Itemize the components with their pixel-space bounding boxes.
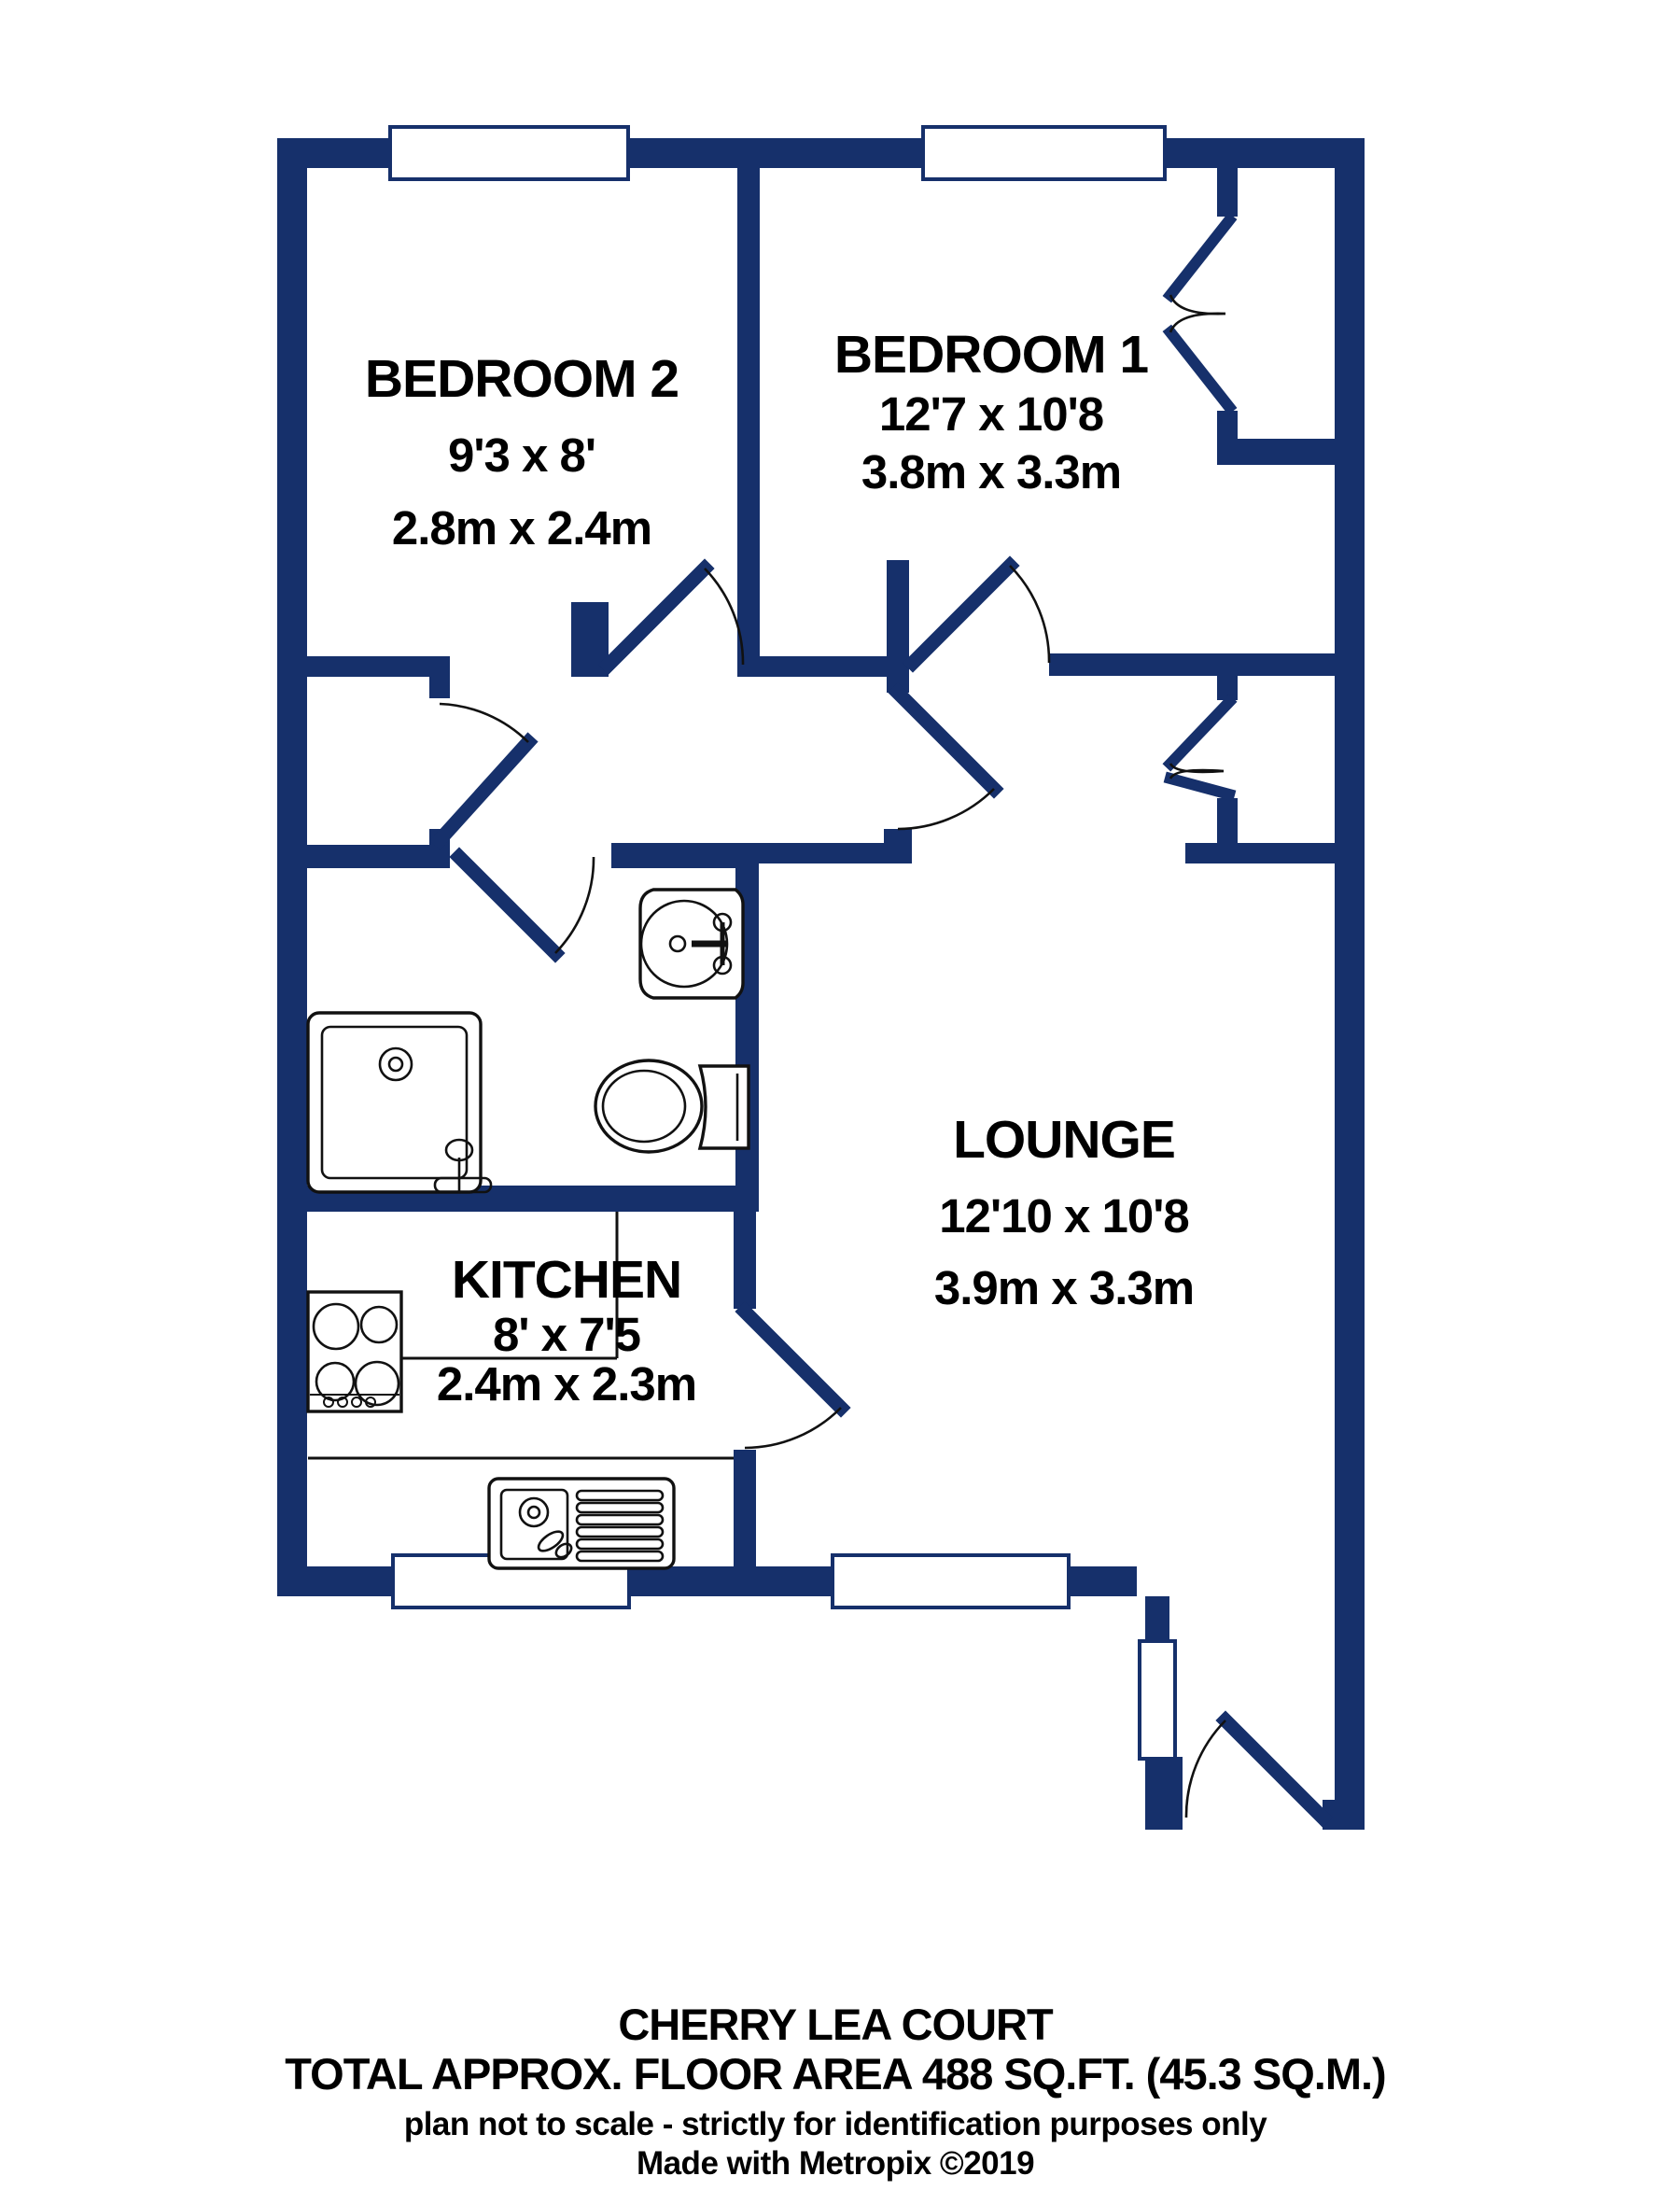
wall-porch-left-lower	[1145, 1757, 1183, 1830]
footer-property-name: CHERRY LEA COURT	[618, 2000, 1054, 2049]
bedroom1-metric: 3.8m x 3.3m	[861, 445, 1121, 498]
wall-left	[277, 138, 307, 1596]
door-entry	[1186, 1720, 1323, 1818]
floor-plan: BEDROOM 2 9'3 x 8' 2.8m x 2.4m BEDROOM 1…	[0, 0, 1680, 2190]
bedroom2-metric: 2.8m x 2.4m	[392, 501, 651, 555]
footer-disclaimer: plan not to scale - strictly for identif…	[404, 2106, 1267, 2142]
wall-right	[1335, 138, 1365, 1830]
window-lounge	[833, 1555, 1069, 1607]
footer-credit: Made with Metropix ©2019	[637, 2145, 1034, 2182]
wall-alcove1-bottom	[1217, 439, 1335, 465]
bedroom2-imperial: 9'3 x 8'	[448, 428, 595, 482]
wall-alcove2-stub-bottom	[1217, 798, 1238, 843]
wall-bedroom1-jamb	[887, 560, 909, 693]
door-bedroom1	[913, 566, 1049, 663]
bedroom2-name: BEDROOM 2	[365, 349, 679, 409]
door-kitchen	[745, 1312, 841, 1448]
wall-kitchen-divider-upper	[734, 1212, 756, 1309]
kitchen-name: KITCHEN	[452, 1250, 681, 1310]
wall-alcove2-bottom	[1185, 843, 1335, 863]
wall-kitchen-divider-lower	[734, 1450, 756, 1596]
lounge-imperial: 12'10 x 10'8	[939, 1189, 1189, 1242]
wall-cupboard-jamb-top	[429, 656, 450, 698]
fixtures	[308, 890, 749, 1568]
wall-lounge-top	[611, 843, 912, 863]
wall-bathroom-top-west	[307, 845, 429, 868]
door-bathroom	[459, 857, 594, 953]
kitchen-sink-icon	[489, 1479, 674, 1568]
wall-porch-left-upper	[1145, 1596, 1169, 1643]
hob-icon	[308, 1292, 401, 1411]
footer-area-line: TOTAL APPROX. FLOOR AREA 488 SQ.FT. (45.…	[285, 2049, 1385, 2099]
window-porch	[1140, 1641, 1175, 1759]
lounge-metric: 3.9m x 3.3m	[934, 1261, 1194, 1314]
shower-icon	[308, 1013, 491, 1192]
bedroom1-imperial: 12'7 x 10'8	[879, 387, 1103, 441]
door-lounge	[898, 693, 994, 829]
door-hall-cupboard	[440, 704, 528, 840]
door-bedroom2	[609, 569, 743, 665]
kitchen-metric: 2.4m x 2.3m	[437, 1357, 696, 1411]
bedroom1-name: BEDROOM 1	[834, 325, 1149, 385]
wall-bedroom1-south-east	[1049, 653, 1335, 676]
wall-bedroom2-bottom	[307, 656, 429, 677]
room-labels: BEDROOM 2 9'3 x 8' 2.8m x 2.4m BEDROOM 1…	[365, 325, 1194, 1411]
toilet-icon	[595, 1060, 749, 1152]
door-wardrobe2-bifold	[1170, 702, 1229, 794]
wall-alcove1-stub-top	[1217, 168, 1238, 217]
kitchen-imperial: 8' x 7'5	[493, 1308, 640, 1361]
window-bedroom1	[923, 127, 1165, 179]
lounge-name: LOUNGE	[953, 1110, 1175, 1170]
wall-bedroom-partition	[737, 168, 760, 677]
door-wardrobe1-bifold	[1170, 220, 1229, 407]
footer: CHERRY LEA COURT TOTAL APPROX. FLOOR ARE…	[285, 2000, 1385, 2182]
floor-plan-page: BEDROOM 2 9'3 x 8' 2.8m x 2.4m BEDROOM 1…	[0, 0, 1680, 2190]
basin-icon	[640, 890, 743, 998]
window-bedroom2	[390, 127, 628, 179]
